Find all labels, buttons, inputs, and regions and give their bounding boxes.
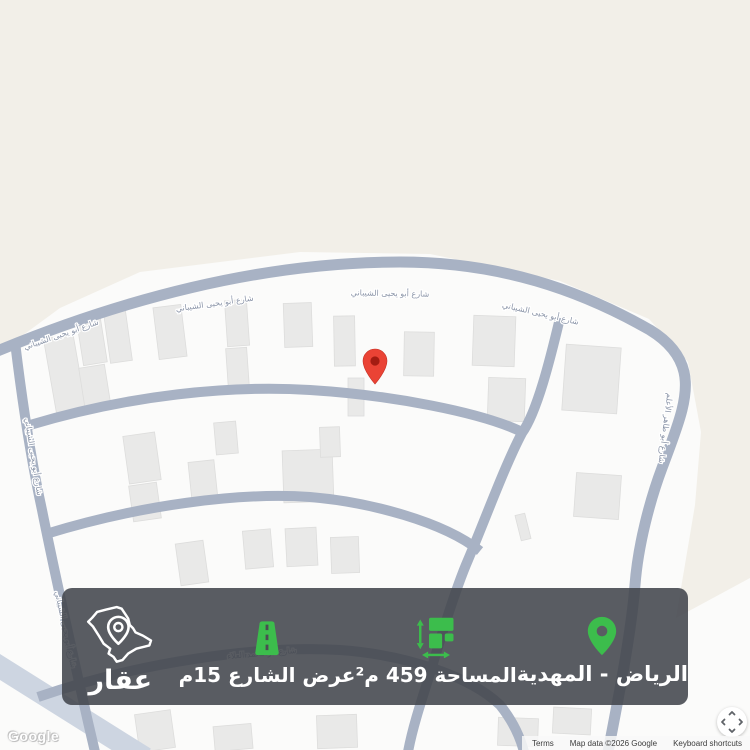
brand-group: عقار (62, 588, 179, 705)
street-width-label: عرض الشارع 15م (179, 664, 356, 686)
keyboard-shortcuts-link[interactable]: Keyboard shortcuts (673, 739, 742, 748)
location-group: الرياض - المهدية (517, 588, 688, 705)
location-pin-icon (585, 613, 619, 657)
map-attribution: Terms Map data ©2026 Google Keyboard sho… (522, 736, 750, 750)
terms-link[interactable]: Terms (532, 739, 554, 748)
listing-info-bar: الرياض - المهدية المساحة 459 م² (62, 588, 688, 705)
pan-control-button[interactable] (717, 707, 747, 737)
area-group: المساحة 459 م² (355, 588, 516, 705)
street-width-group: عرض الشارع 15م (179, 588, 356, 705)
saudi-map-pin-icon (78, 603, 162, 665)
map-data-credit: Map data ©2026 Google (570, 739, 657, 748)
road-icon (247, 614, 287, 658)
listing-map-screenshot: شارع أبو يحيى الشيباني شارع أبو يحيى الش… (0, 0, 750, 750)
map-marker-pin[interactable] (362, 348, 388, 385)
google-logo: Google (8, 728, 59, 744)
brand-name: عقار (89, 667, 153, 694)
location-label: الرياض - المهدية (517, 663, 688, 686)
area-dimensions-icon (415, 614, 457, 658)
street-label: شارع أبو يحيى الشيباني (351, 287, 430, 298)
area-label: المساحة 459 م² (355, 664, 516, 686)
